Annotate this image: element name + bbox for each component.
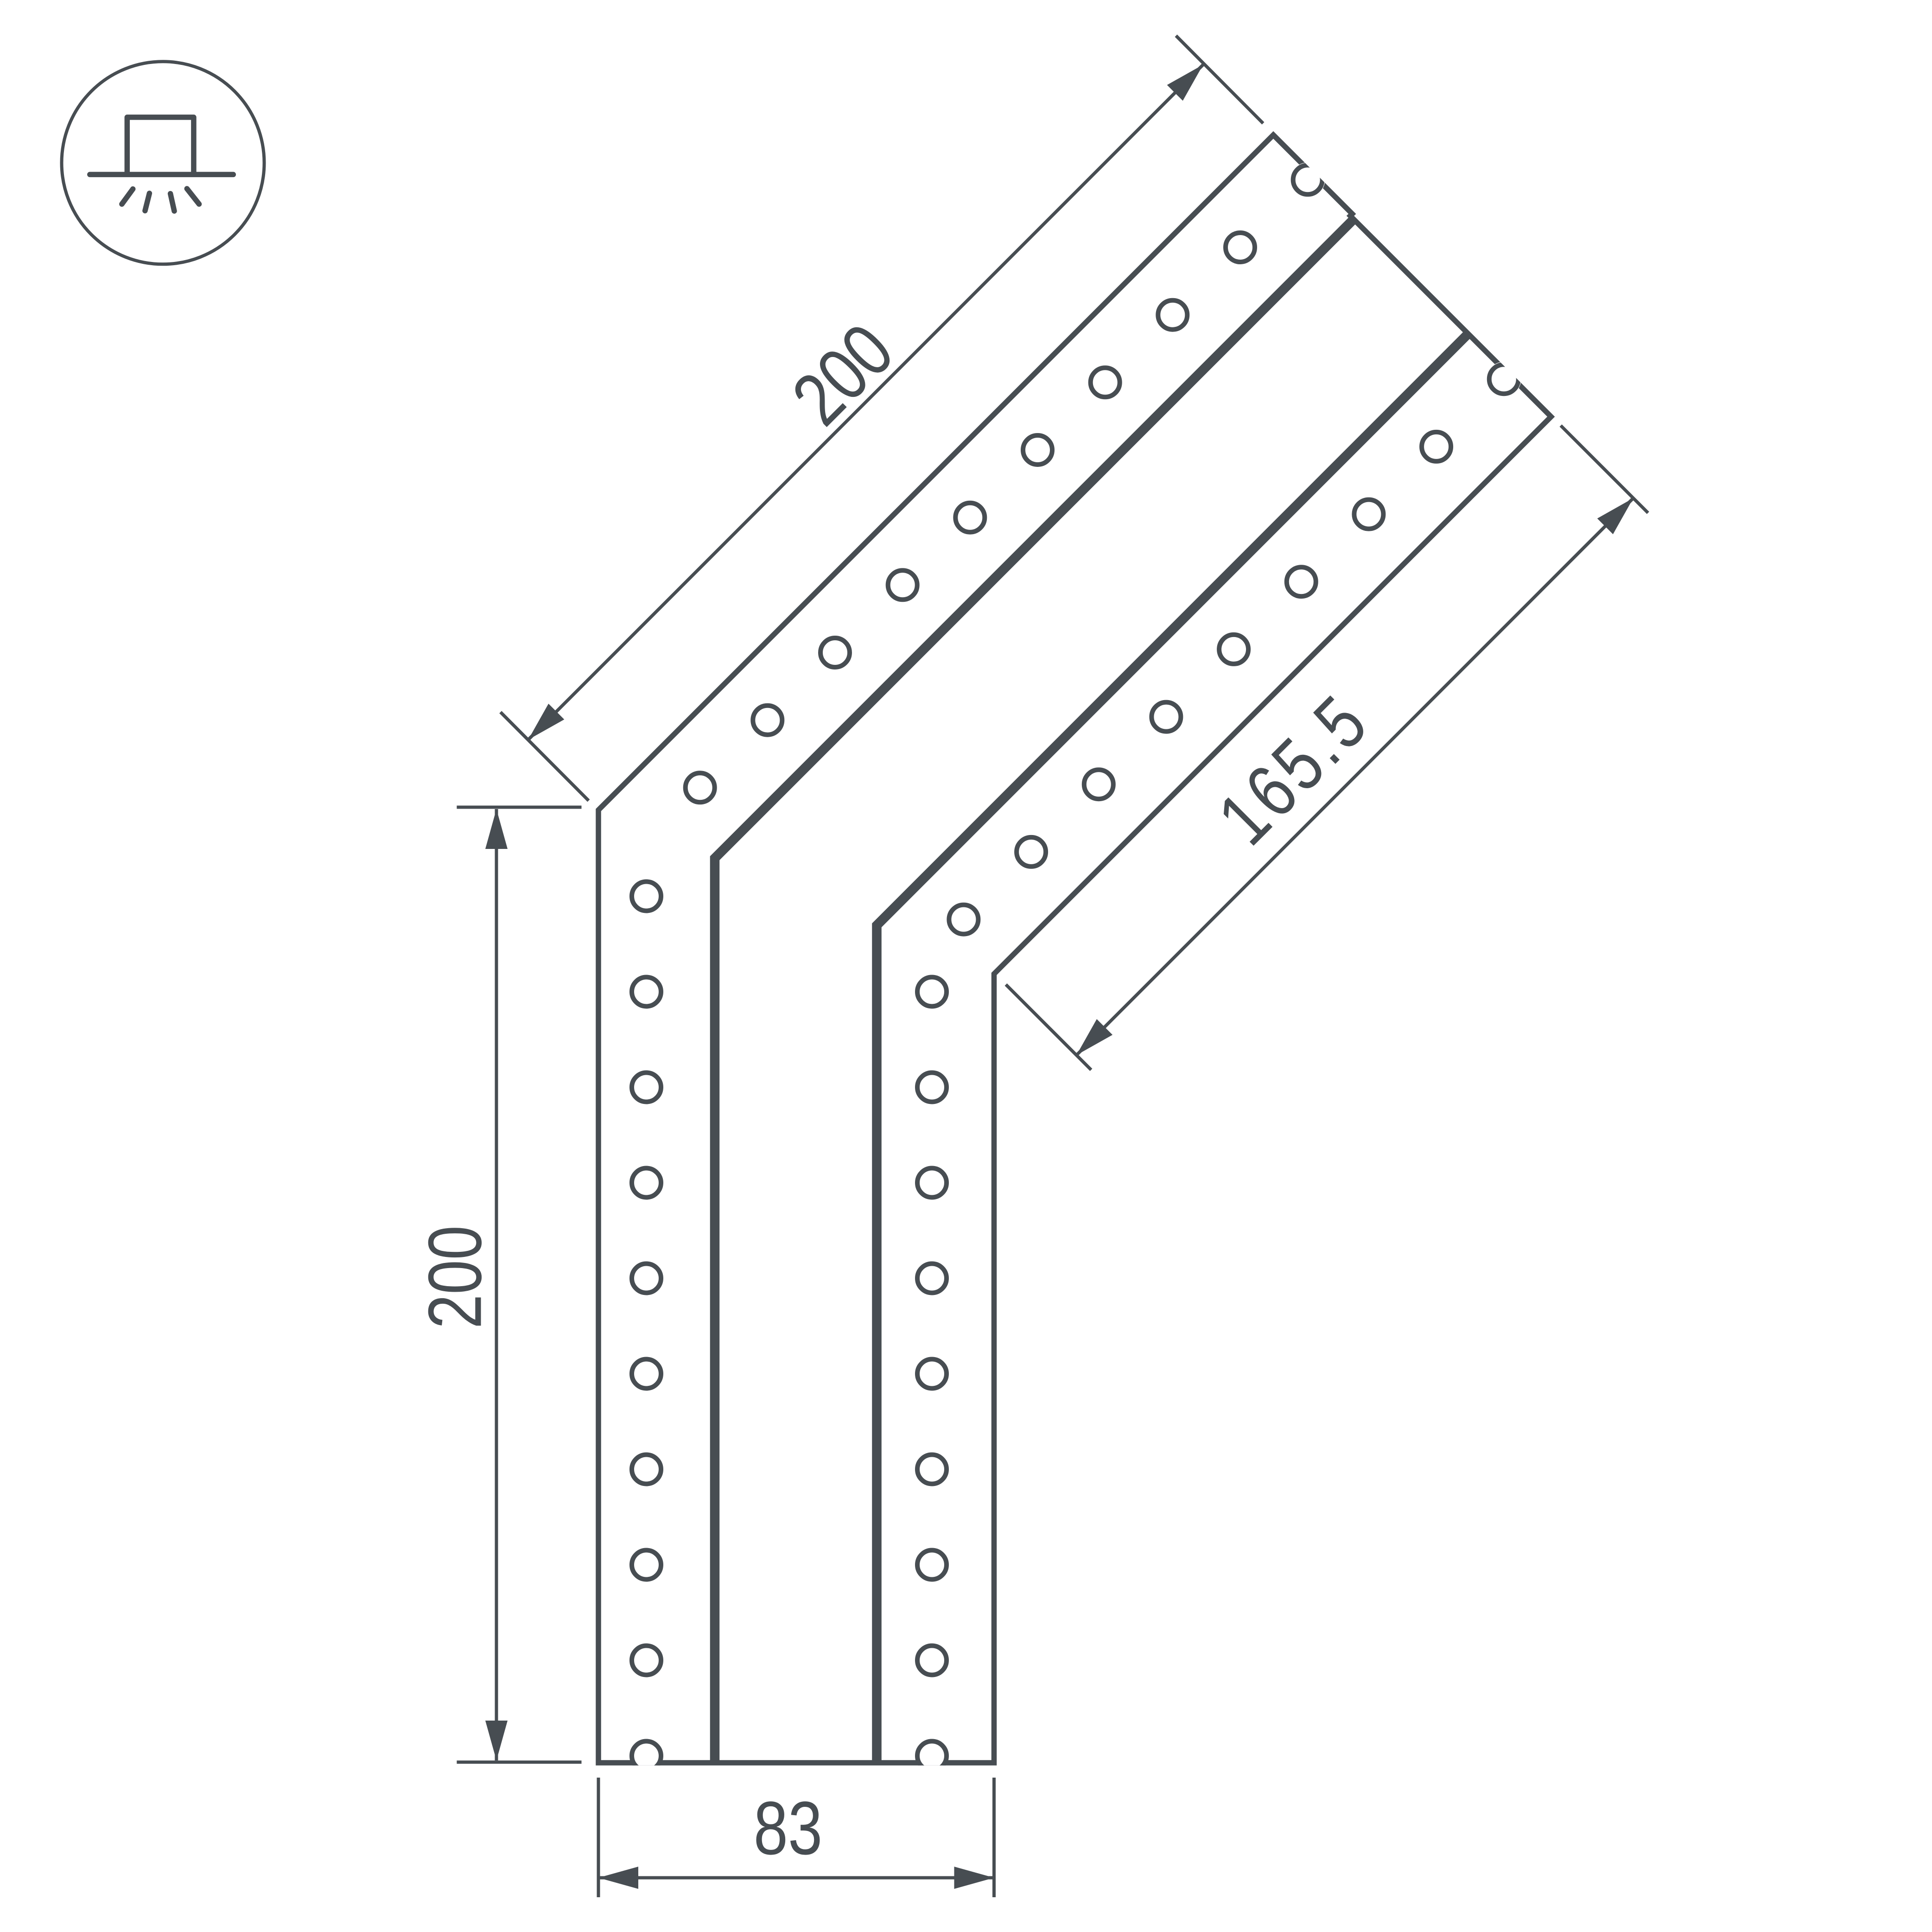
svg-text:200: 200 — [413, 1225, 497, 1329]
svg-text:83: 83 — [754, 1785, 823, 1870]
